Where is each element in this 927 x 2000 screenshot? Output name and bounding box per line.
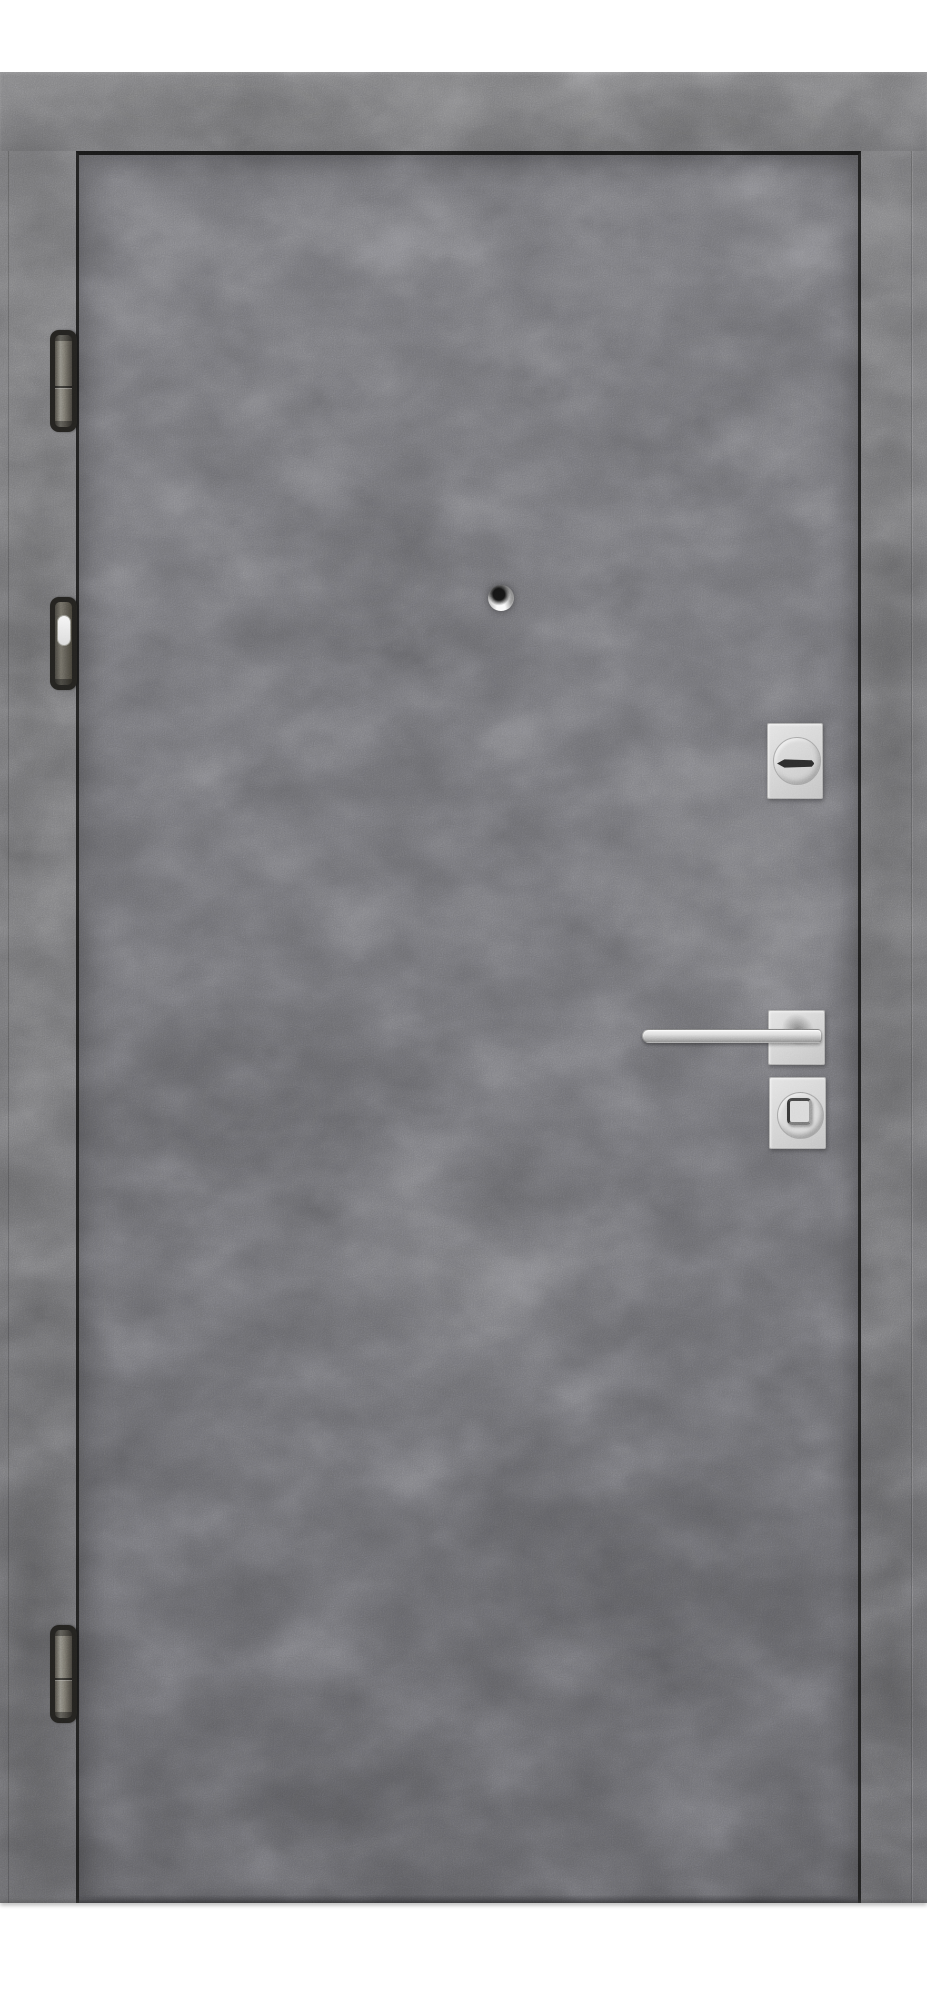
hinge-band	[55, 386, 72, 388]
hinge-top	[50, 330, 77, 432]
keyhole-escutcheon	[767, 723, 823, 799]
door-frame-header	[0, 72, 927, 153]
hinge-white-cap	[57, 615, 71, 646]
hinge-band	[55, 1678, 72, 1680]
product-photo	[0, 0, 927, 2000]
thumbturn-square	[787, 1098, 812, 1125]
hinge-cap	[55, 679, 72, 685]
peephole	[488, 585, 514, 611]
door-handle-lever	[642, 1029, 822, 1043]
hinge-cap	[55, 421, 72, 427]
door-bottom-shadow	[0, 1901, 927, 1905]
hinge-cap	[55, 1712, 72, 1718]
hinge-cap	[55, 335, 72, 341]
lock-plate	[769, 1077, 826, 1149]
door-leaf	[76, 151, 861, 1903]
hinge-pin	[55, 602, 72, 685]
hinge-pin	[55, 1630, 72, 1718]
hinge-middle	[50, 597, 77, 690]
hinge-cap	[55, 1630, 72, 1636]
door-frame-right-jamb	[861, 151, 927, 1903]
hinge-bottom	[50, 1625, 77, 1723]
hinge-pin	[55, 335, 72, 427]
